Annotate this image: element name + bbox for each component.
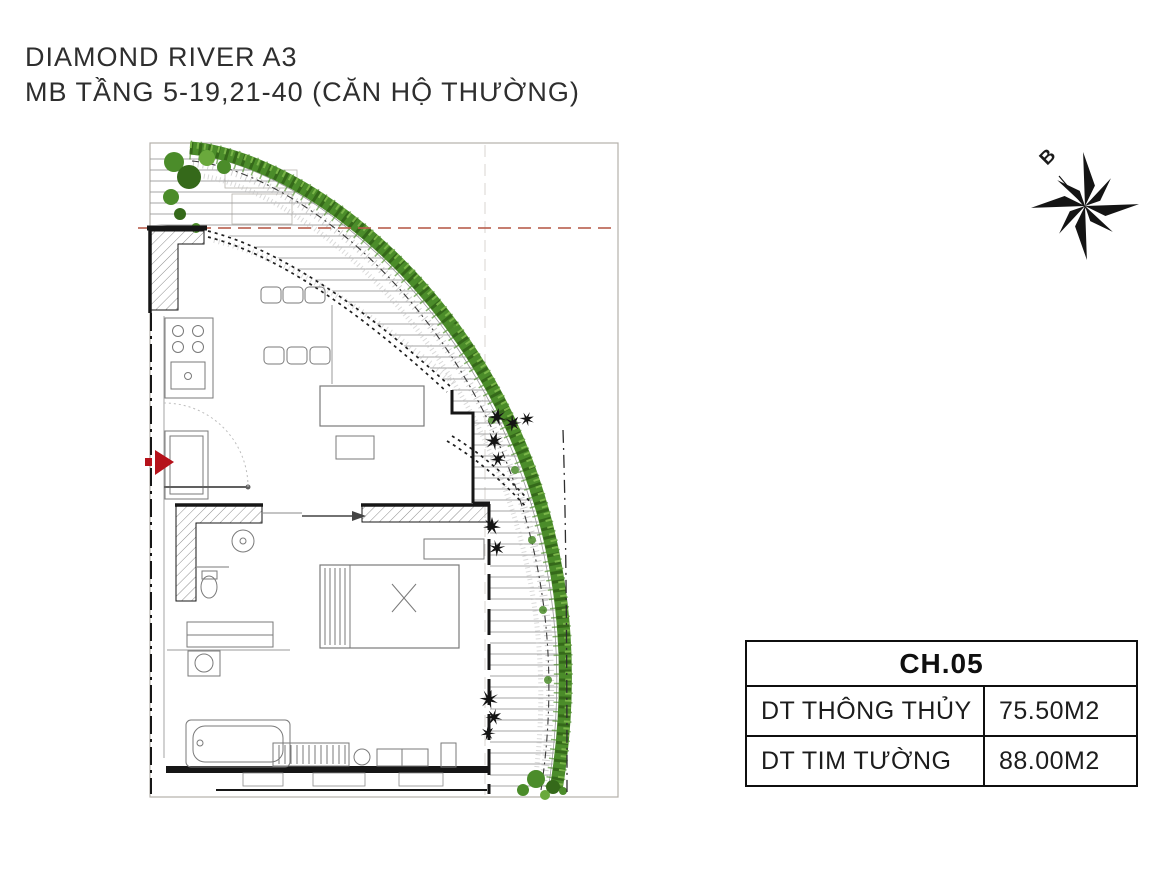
unit-code-header: CH.05 xyxy=(747,642,1136,687)
bedroom-wall xyxy=(362,506,488,522)
area-label-net: DT THÔNG THỦY xyxy=(747,687,985,735)
table-row: DT THÔNG THỦY 75.50M2 xyxy=(747,687,1136,737)
area-value-gross: 88.00M2 xyxy=(985,737,1136,785)
compass-rose: B xyxy=(1025,145,1145,266)
table-row: DT TIM TƯỜNG 88.00M2 xyxy=(747,737,1136,785)
area-label-gross: DT TIM TƯỜNG xyxy=(747,737,985,785)
area-value-net: 75.50M2 xyxy=(985,687,1136,735)
page-canvas: DIAMOND RIVER A3 MB TẦNG 5-19,21-40 (CĂN… xyxy=(0,0,1170,878)
compass-north-label: B xyxy=(1036,145,1061,170)
unit-info-table: CH.05 DT THÔNG THỦY 75.50M2 DT TIM TƯỜNG… xyxy=(745,640,1138,787)
